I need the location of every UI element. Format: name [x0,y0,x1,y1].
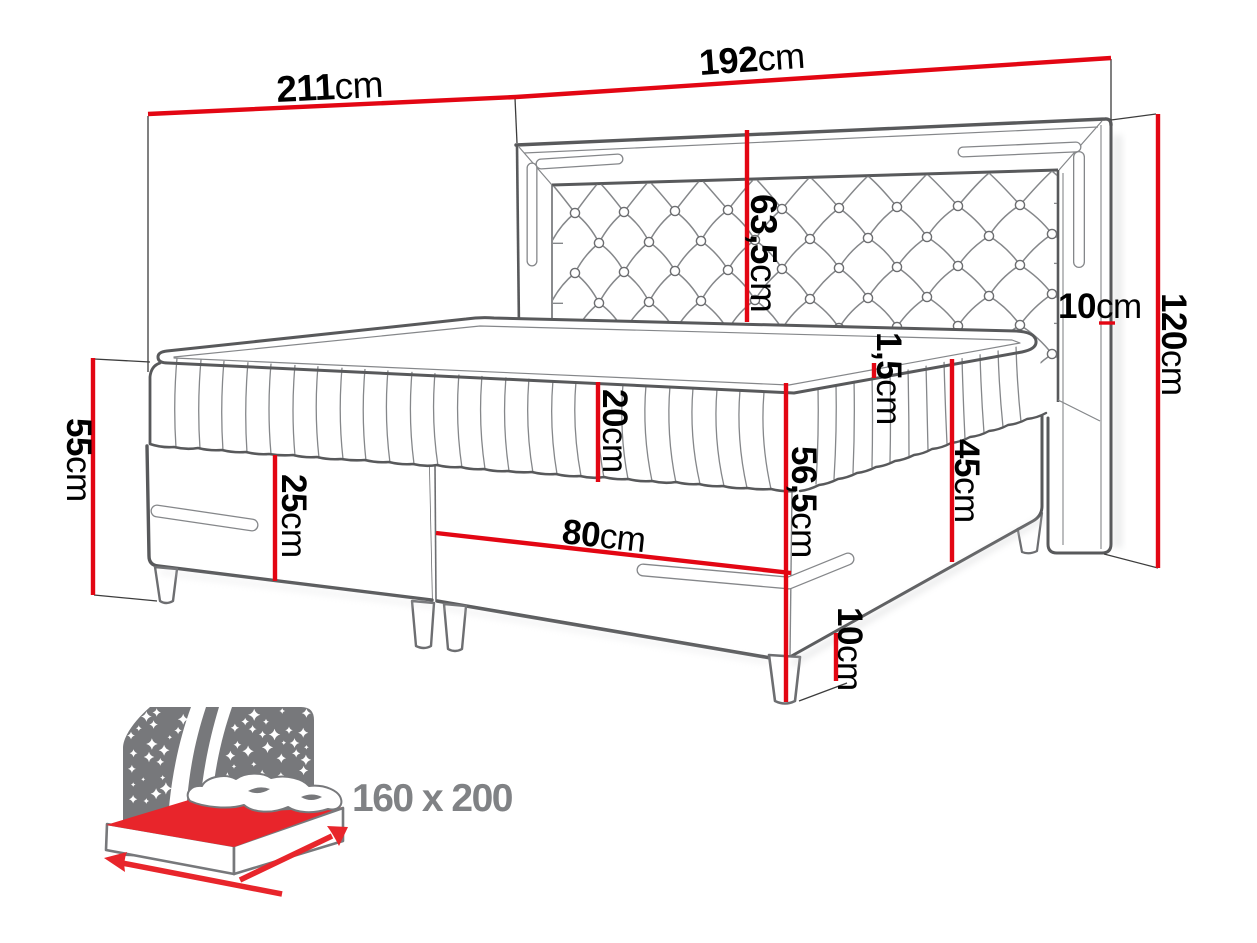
svg-text:120cm: 120cm [1154,293,1193,396]
svg-text:20cm: 20cm [595,389,634,473]
svg-text:211cm: 211cm [275,64,383,110]
svg-text:63,5cm: 63,5cm [743,194,784,312]
svg-text:10cm: 10cm [1058,287,1142,326]
svg-text:25cm: 25cm [274,474,313,558]
svg-text:160 x 200: 160 x 200 [352,777,513,820]
svg-text:45cm: 45cm [947,439,986,523]
svg-text:56,5cm: 56,5cm [784,446,823,558]
svg-text:10cm: 10cm [830,607,869,691]
svg-text:192cm: 192cm [698,35,806,83]
svg-text:1,5cm: 1,5cm [869,332,908,425]
svg-text:55cm: 55cm [59,418,98,502]
